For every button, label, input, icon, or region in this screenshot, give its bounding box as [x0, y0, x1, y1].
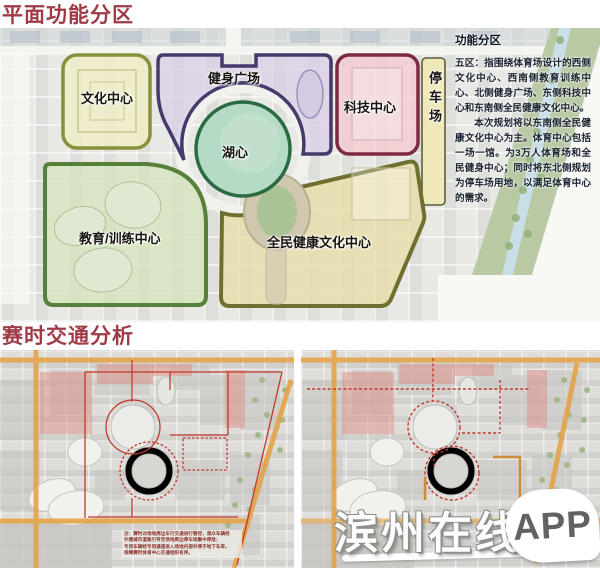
road-vertical	[226, 28, 241, 55]
watermark-bubble: APP	[504, 487, 600, 565]
zone-label-tech: 科技中心	[344, 97, 396, 116]
legend-paragraph-1: 五区：指围绕体育场设计的西侧文化中心、西南侧教育训练中心、北侧健身广场、东侧科技…	[455, 56, 591, 116]
traffic-note: 注：赛时对场地周边车行交通进行管控，观众车辆经 外围城市道路引导至场地周边停车场…	[122, 530, 242, 558]
watermark-name: 滨州在线	[334, 497, 522, 561]
page: 平面功能分区	[0, 0, 600, 568]
zone-label-education: 教育/训练中心	[79, 228, 161, 247]
health-building	[352, 168, 410, 220]
running-track	[297, 70, 323, 118]
west-margin	[0, 52, 30, 304]
stadium-field	[257, 186, 297, 238]
zone-label-parking: 停车场	[425, 71, 444, 128]
watermark-app-badge: APP	[512, 502, 593, 548]
zone-label-lake: 湖心	[222, 142, 248, 161]
zone-label-culture: 文化中心	[81, 88, 133, 107]
section-title-zoning: 平面功能分区	[2, 0, 134, 29]
functional-zoning-plan: 文化中心 健身广场 科技中心 湖心 教育/训练中心 全民健康文化中心 停车场 功…	[0, 28, 600, 322]
zone-label-fitness: 健身广场	[208, 68, 260, 87]
section-title-traffic: 赛时交通分析	[2, 320, 134, 350]
legend-panel: 功能分区 五区：指围绕体育场设计的西侧文化中心、西南侧教育训练中心、北侧健身广场…	[455, 32, 591, 206]
legend-title: 功能分区	[455, 32, 591, 48]
stadium-stem	[266, 246, 286, 304]
zone-label-health: 全民健康文化中心	[267, 232, 371, 251]
legend-paragraph-2: 本次规划将以东南侧全民健康文化中心为主。体育中心包括一场一馆。为3万人体育场和全…	[455, 116, 591, 206]
